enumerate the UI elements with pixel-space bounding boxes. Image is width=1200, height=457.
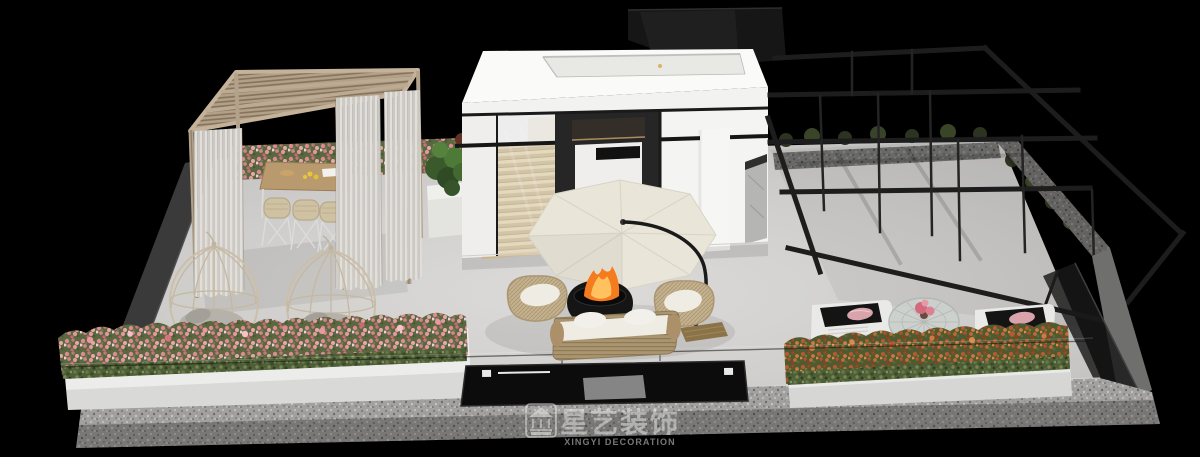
- watermark-brand-cn: 星艺装饰: [560, 407, 680, 438]
- left-pier: [462, 114, 497, 258]
- roof-skylight: [543, 54, 745, 77]
- planter-front-right: [784, 322, 1072, 408]
- watermark-brand-en: XINGYI DECORATION: [564, 437, 676, 447]
- pavilion-icon: [526, 404, 556, 437]
- terrace-render: 星艺装饰 XINGYI DECORATION: [0, 0, 1200, 457]
- rattan-armchair: [507, 276, 566, 321]
- serving-board: [280, 170, 294, 176]
- wall-tv: [596, 146, 640, 160]
- render-canvas: 星艺装饰 XINGYI DECORATION: [0, 0, 1200, 457]
- sunken-skylight: [461, 361, 748, 406]
- curtain: [384, 90, 422, 282]
